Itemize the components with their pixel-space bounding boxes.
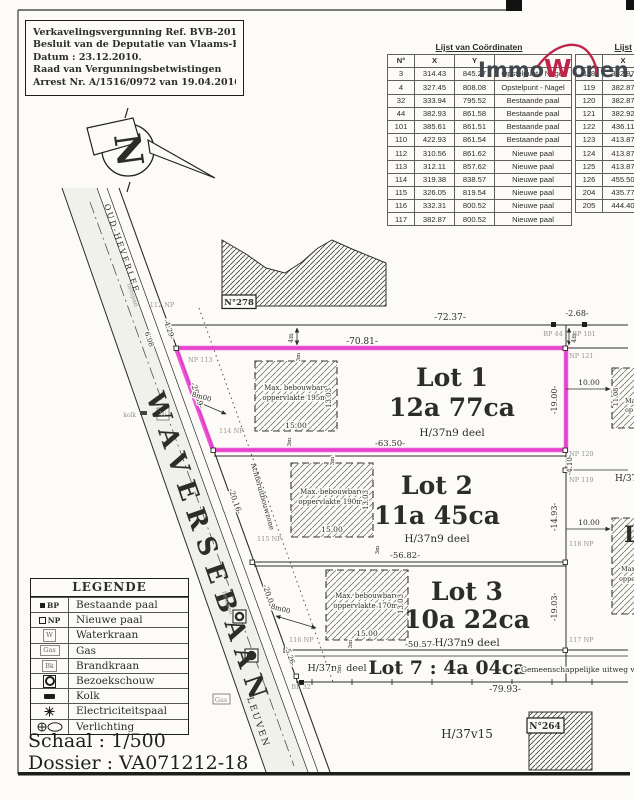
table-cell: 327.45 (415, 81, 455, 94)
fragment: H/37 (615, 474, 634, 484)
table-cell: 838.57 (455, 173, 495, 186)
table-cell: 120 (576, 94, 603, 107)
table-cell: 314.43 (415, 68, 455, 81)
table-cell: 861.51 (455, 120, 495, 133)
dim: -79.93- (489, 685, 521, 695)
waterkraan-symbol: W (31, 628, 69, 642)
gas-box-icon: Gas (40, 645, 60, 656)
table-cell: 114 (388, 173, 415, 186)
dim: -5.26- (283, 645, 297, 667)
dim: -19.00- (550, 386, 559, 415)
lot1-name: Lot 1 (416, 363, 488, 392)
dim: 13.03 (362, 490, 370, 510)
table-cell: Nieuwe paal (495, 200, 572, 213)
scanned-subdivision-plan: N°278 N°264 (0, 0, 634, 800)
dim: -19.03- (550, 593, 559, 622)
legend-label: Kolk (69, 690, 100, 702)
legend-label: Brandkraan (69, 660, 139, 672)
table-row: 124413.87 (576, 147, 634, 160)
table-row: 123413.87 (576, 134, 634, 147)
dim: 15.00 (285, 421, 307, 430)
table-row: 126455.50 (576, 173, 634, 186)
table-row: 120382.87 (576, 94, 634, 107)
table-row: 114319.38838.57Nieuwe paal (388, 173, 572, 186)
table-cell: 326.05 (415, 186, 455, 199)
table-cell: 125 (576, 160, 603, 173)
logo-swoosh-icon (476, 36, 634, 76)
table-cell: 204 (576, 186, 603, 199)
point-label: 114 NP (219, 427, 244, 435)
table-cell: Bestaande paal (495, 120, 572, 133)
open-square-icon (39, 617, 46, 624)
bk-box-icon: Bk (42, 660, 57, 672)
table-row: 121382.92 (576, 107, 634, 120)
permit-line: Raad van Vergunningsbetwistingen (33, 64, 236, 76)
lot1-area: 12a 77ca (389, 393, 515, 422)
table-cell: 44 (388, 107, 415, 120)
table-cell: Bestaande paal (495, 107, 572, 120)
table-cell: 413.87 (603, 160, 634, 173)
lot2-area: 11a 45ca (374, 501, 500, 530)
immowonen-watermark: ImmoWonen.be (476, 48, 634, 84)
lot2-envelope-line1: Max. bebouwbare (300, 488, 364, 496)
fragment: Ma (625, 397, 634, 405)
lot2-envelope-line2: oppervlakte 190m² (298, 498, 365, 506)
table-cell: 444.40 (603, 200, 634, 213)
table-cell: 795.52 (455, 94, 495, 107)
table-cell: 800.52 (455, 213, 495, 226)
dim: -2.68- (565, 309, 589, 318)
legend-label: Gas (69, 645, 96, 657)
legend-label: Nieuwe paal (69, 614, 143, 626)
lot3-envelope-line2: oppervlakte 170m² (333, 602, 400, 610)
point-label: BP 101 (572, 330, 596, 338)
table-row: 125413.87 (576, 160, 634, 173)
gas-symbol: Gas (31, 644, 69, 658)
table-row: 122436.11 (576, 120, 634, 133)
table-cell: 116 (388, 200, 415, 213)
dim: -72.37- (434, 313, 466, 323)
table-cell: 436.11 (603, 120, 634, 133)
bp-symbol: BP (31, 598, 69, 612)
dim: -20.16- (227, 487, 244, 515)
table-cell: 312.11 (415, 160, 455, 173)
table-row: 204435.77 (576, 186, 634, 199)
legend: LEGENDE BP Bestaande paal NP Nieuwe paal… (30, 578, 189, 735)
legend-row: Gas Gas (31, 643, 188, 658)
table-cell: 205 (576, 200, 603, 213)
legend-row: BP Bestaande paal (31, 597, 188, 612)
parcel-278-label: N°278 (224, 298, 254, 308)
symbol-text: NP (48, 616, 61, 625)
legend-label: Electriciteitspaal (69, 705, 167, 717)
lot7-name: Lot 7 : 4a 04ca (368, 657, 525, 679)
table-cell: 385.61 (415, 120, 455, 133)
table-cell: Nieuwe paal (495, 173, 572, 186)
legend-row: W Waterkraan (31, 627, 188, 642)
lot1-envelope-line1: Max. bebouwbare (264, 384, 328, 392)
legend-row: Bezoekschouw (31, 673, 188, 688)
point-label: NP 119 (569, 476, 594, 484)
brandkraan-symbol: Bk (31, 659, 69, 673)
dim: 10.00 (578, 378, 600, 387)
lot3-deel: H/37n9 deel (434, 637, 500, 649)
column-header: X (415, 55, 455, 68)
fragment: opper (619, 575, 634, 583)
legend-row: NP Nieuwe paal (31, 612, 188, 627)
dim: 3m (375, 545, 381, 554)
dim: 13.03 (325, 388, 333, 408)
table-row: 44382.93861.58Bestaande paal (388, 107, 572, 120)
point-label: BP 44 (543, 330, 563, 338)
table-cell: Nieuwe paal (495, 160, 572, 173)
dim: -50.57- (405, 640, 435, 650)
point-label: 118 NP (569, 540, 594, 548)
table-cell: 422.93 (415, 134, 455, 147)
legend-label: Bestaande paal (69, 599, 158, 611)
dim: -4.29- (162, 318, 176, 340)
table-cell: 333.94 (415, 94, 455, 107)
dim: 4m (288, 333, 295, 343)
table-cell: 455.50 (603, 173, 634, 186)
lot1-envelope-line2: oppervlakte 195m² (262, 394, 329, 402)
footer-block: Schaal : 1/500 Dossier : VA071212-18 (28, 731, 248, 774)
lot7-uitweg-note: Gemeenschappelijke uitweg voor d (521, 665, 634, 674)
w-box-icon: W (43, 629, 56, 642)
waterkraan-letter: W (159, 411, 167, 419)
table-cell: 101 (388, 120, 415, 133)
permit-line: Arrest Nr. A/1516/0972 van 19.04.2016. (33, 77, 236, 89)
table-row: 115326.05819.54Nieuwe paal (388, 186, 572, 199)
h37v15-label: H/37v15 (441, 727, 493, 741)
parcel-278: N°278 (222, 240, 386, 309)
table-cell: 332.31 (415, 200, 455, 213)
table-cell: 3 (388, 68, 415, 81)
table-cell: 861.58 (455, 107, 495, 120)
point-label: BP 32 (291, 683, 311, 691)
symbol-text: BP (47, 601, 59, 610)
table-row: 117382.87800.52Nieuwe paal (388, 213, 572, 226)
permit-line: Besluit van de Deputatie van Vlaams-Brab… (33, 39, 236, 51)
dim: 3m (296, 352, 302, 361)
table-row: 101385.61861.51Bestaande paal (388, 120, 572, 133)
dim: -56.82- (390, 551, 420, 561)
table-cell: Bestaande paal (495, 134, 572, 147)
table-cell: 861.54 (455, 134, 495, 147)
parcel-264-label: N°264 (529, 722, 561, 732)
table-cell: 124 (576, 147, 603, 160)
table-cell: 117 (388, 213, 415, 226)
dim: 15.00 (321, 525, 343, 534)
dim: -14.93- (550, 503, 559, 532)
dim: 5m (337, 664, 343, 673)
permit-title-block: Verkavelingsvergunning Ref. BVB-2010581 … (25, 20, 244, 96)
dim: -63.50- (375, 439, 405, 449)
table-cell: 121 (576, 107, 603, 120)
scale-text: Schaal : 1/500 (28, 731, 248, 753)
point-label: 115 NP (257, 535, 282, 543)
table-cell: 112 (388, 147, 415, 160)
lot3-area: 10a 22ca (404, 605, 530, 634)
point-label: NP 113 (188, 356, 213, 364)
legend-row: Kolk (31, 688, 188, 703)
lot2-deel: H/37n9 deel (404, 533, 470, 545)
table-row: 112310.56861.62Nieuwe paal (388, 147, 572, 160)
electriciteitspaal-symbol (31, 704, 69, 718)
table-cell: 310.56 (415, 147, 455, 160)
table-cell: 413.87 (603, 147, 634, 160)
table-cell: 32 (388, 94, 415, 107)
table-cell: 800.52 (455, 200, 495, 213)
lot2-name: Lot 2 (401, 471, 473, 500)
point-label: 117 NP (569, 636, 594, 644)
table-cell: 382.92 (603, 107, 634, 120)
gas-letter: Gas (215, 696, 227, 704)
point-label: NP 120 (569, 450, 594, 458)
permit-line: Datum : 23.12.2010. (33, 52, 236, 64)
table-cell: 115 (388, 186, 415, 199)
legend-label: Waterkraan (69, 629, 138, 641)
dim: 10.00 (578, 518, 600, 527)
setback-label: Achteruitbouwzone (249, 461, 276, 531)
fragment: L (624, 522, 634, 548)
table-cell: 113 (388, 160, 415, 173)
permit-line: Verkavelingsvergunning Ref. BVB-2010581 (33, 27, 236, 39)
north-arrow-icon: N (87, 108, 215, 192)
table-cell: Nieuwe paal (495, 186, 572, 199)
table-cell: 861.62 (455, 147, 495, 160)
table-cell: 819.54 (455, 186, 495, 199)
column-header: N° (388, 55, 415, 68)
point-label: 112 NP (150, 301, 175, 309)
table-cell: 857.62 (455, 160, 495, 173)
dim: 3m (287, 437, 293, 446)
table-cell: 382.93 (415, 107, 455, 120)
legend-row: Bk Brandkraan (31, 658, 188, 673)
kolk-symbol (31, 689, 69, 703)
bezoekschouw-symbol (31, 674, 69, 688)
dossier-text: Dossier : VA071212-18 (28, 753, 248, 775)
lot3-envelope-line1: Max. bebouwbare (335, 592, 399, 600)
dim: 3m (348, 639, 354, 648)
lot1-deel: H/37n9 deel (419, 427, 485, 439)
dim: 3m (330, 456, 336, 465)
table-row: 205444.40 (576, 200, 634, 213)
table-cell: Nieuwe paal (495, 147, 572, 160)
dim: 11.08 (612, 388, 620, 407)
dim: -70.81- (346, 337, 378, 347)
table-cell: 435.77 (603, 186, 634, 199)
table-cell: 382.87 (415, 213, 455, 226)
table-cell: 126 (576, 173, 603, 186)
fragment: Max. (621, 565, 634, 573)
table-row: 113312.11857.62Nieuwe paal (388, 160, 572, 173)
table-cell: 110 (388, 134, 415, 147)
table-cell: 123 (576, 134, 603, 147)
table-cell: Nieuwe paal (495, 213, 572, 226)
manhole-icon (43, 675, 56, 688)
table-cell: Bestaande paal (495, 94, 572, 107)
legend-row: Electriciteitspaal (31, 703, 188, 718)
table-cell: 319.38 (415, 173, 455, 186)
table-row: 32333.94795.52Bestaande paal (388, 94, 572, 107)
filled-square-icon (40, 603, 45, 608)
dim: 13.03 (397, 594, 405, 614)
north-letter: N (105, 131, 151, 169)
electricity-pole-icon (44, 706, 55, 717)
fragment: op (625, 406, 633, 414)
table-cell: 382.87 (603, 94, 634, 107)
kolk-label: kolk (123, 412, 136, 419)
legend-title: LEGENDE (31, 579, 188, 597)
legend-label: Bezoekschouw (69, 675, 154, 687)
table-cell: 413.87 (603, 134, 634, 147)
np-symbol: NP (31, 613, 69, 627)
point-label: NP 121 (569, 352, 594, 360)
lot3-name: Lot 3 (431, 577, 503, 606)
gully-icon (44, 694, 55, 699)
point-label: 116 NP (289, 636, 314, 644)
table-cell: 4 (388, 81, 415, 94)
table-row: 110422.93861.54Bestaande paal (388, 134, 572, 147)
parcel-264: N°264 (527, 712, 592, 770)
table-cell: 122 (576, 120, 603, 133)
dim: 15.00 (356, 629, 378, 638)
table-row: 116332.31800.52Nieuwe paal (388, 200, 572, 213)
